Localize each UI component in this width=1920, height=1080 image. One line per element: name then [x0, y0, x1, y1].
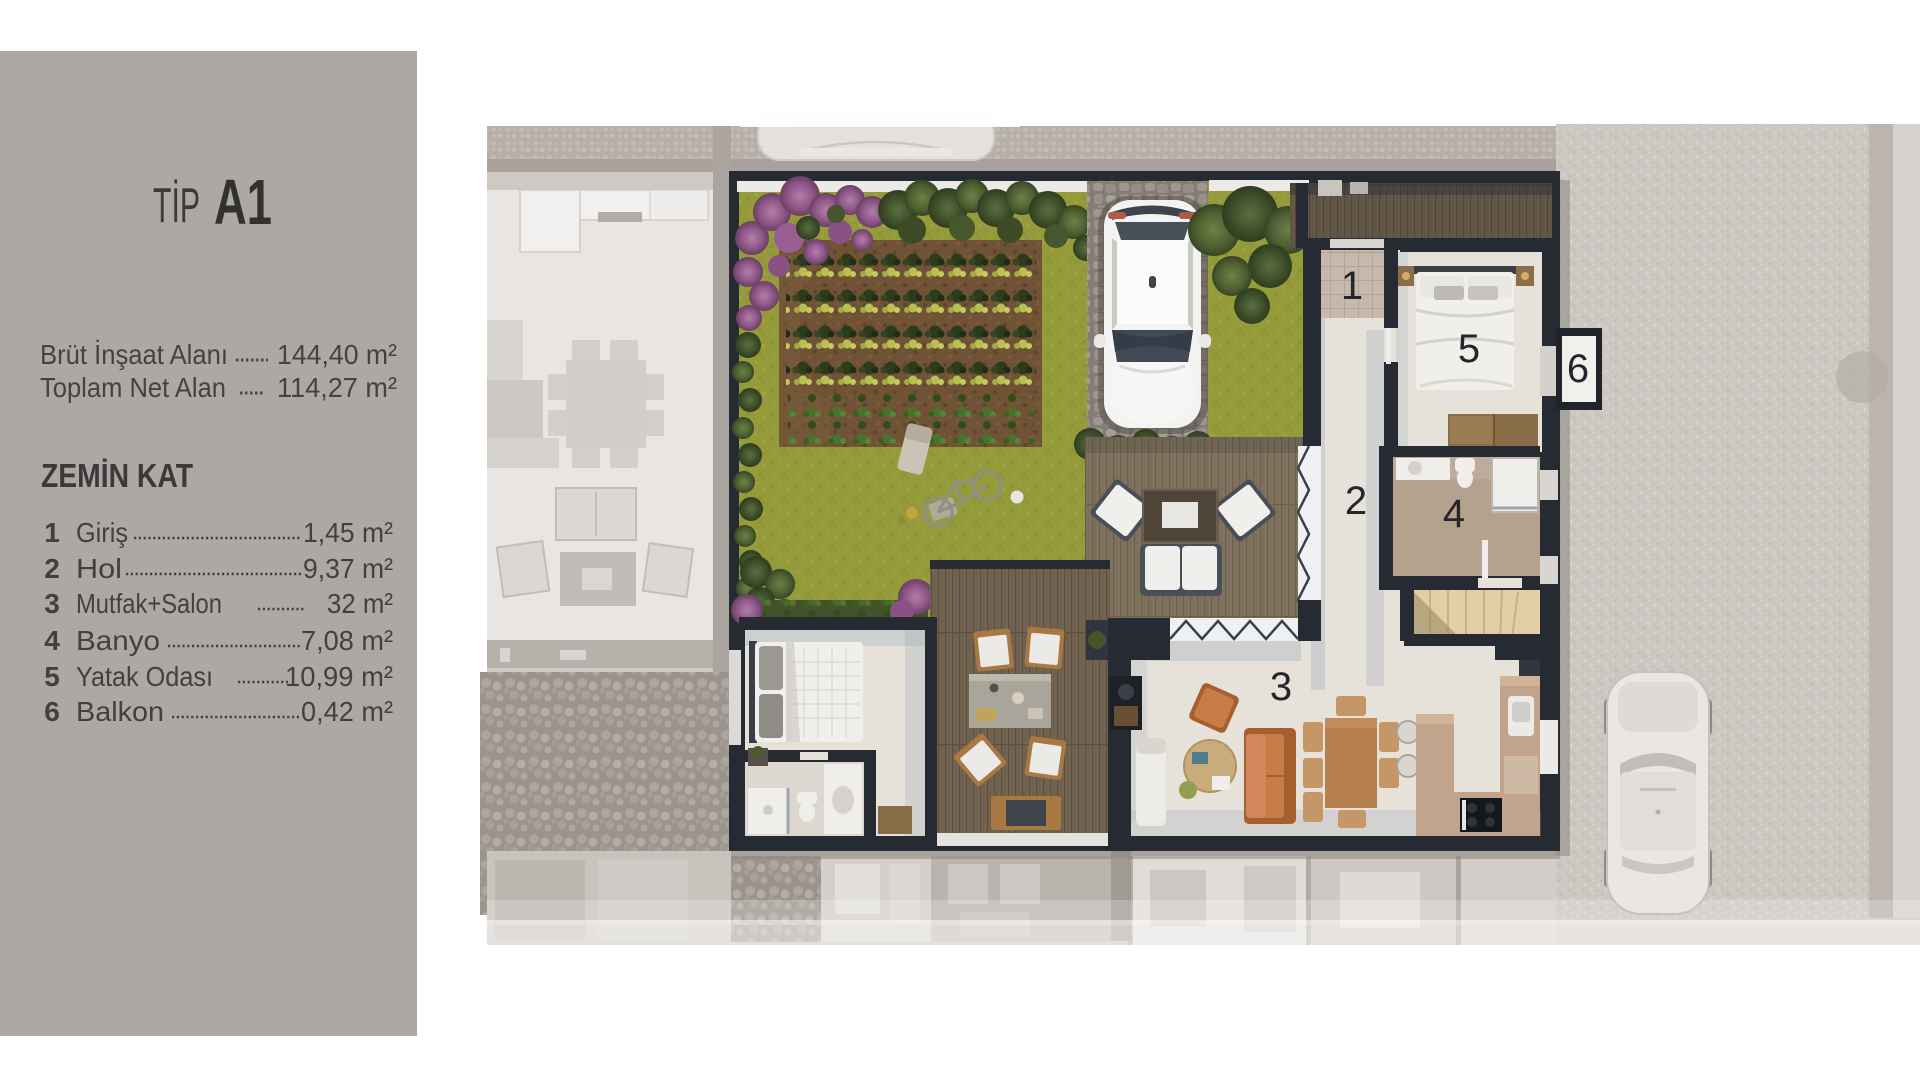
svg-text:0,42 m²: 0,42 m² [301, 696, 393, 727]
svg-text:Giriş: Giriş [76, 517, 128, 548]
svg-text:Brüt İnşaat Alanı: Brüt İnşaat Alanı [40, 339, 228, 370]
svg-text:10,99 m²: 10,99 m² [285, 661, 393, 692]
svg-text:7,08 m²: 7,08 m² [301, 625, 393, 656]
svg-text:ZEMİN KAT: ZEMİN KAT [41, 457, 193, 494]
svg-text:114,27 m²: 114,27 m² [277, 372, 397, 403]
svg-text:Balkon: Balkon [76, 696, 164, 727]
svg-text:2: 2 [44, 553, 60, 584]
svg-text:Mutfak+Salon: Mutfak+Salon [76, 588, 222, 619]
svg-text:4: 4 [44, 625, 60, 656]
svg-text:1: 1 [44, 517, 60, 548]
svg-text:32 m²: 32 m² [327, 588, 393, 619]
svg-text:A1: A1 [214, 166, 272, 238]
svg-text:Toplam Net Alan: Toplam Net Alan [40, 372, 226, 403]
svg-text:Hol: Hol [76, 553, 122, 584]
svg-text:1: 1 [1341, 264, 1363, 308]
svg-text:Banyo: Banyo [76, 625, 160, 656]
svg-text:3: 3 [44, 588, 60, 619]
svg-text:5: 5 [44, 661, 60, 692]
svg-text:1,45 m²: 1,45 m² [303, 517, 393, 548]
svg-text:Yatak Odası: Yatak Odası [76, 661, 213, 692]
svg-text:9,37 m²: 9,37 m² [303, 553, 393, 584]
svg-text:5: 5 [1458, 327, 1480, 371]
svg-text:144,40 m²: 144,40 m² [277, 339, 397, 370]
svg-text:3: 3 [1270, 665, 1292, 709]
svg-text:6: 6 [44, 696, 60, 727]
svg-text:6: 6 [1567, 347, 1589, 391]
svg-text:2: 2 [1345, 479, 1367, 523]
svg-text:TİP: TİP [153, 179, 200, 233]
svg-text:4: 4 [1443, 492, 1465, 536]
